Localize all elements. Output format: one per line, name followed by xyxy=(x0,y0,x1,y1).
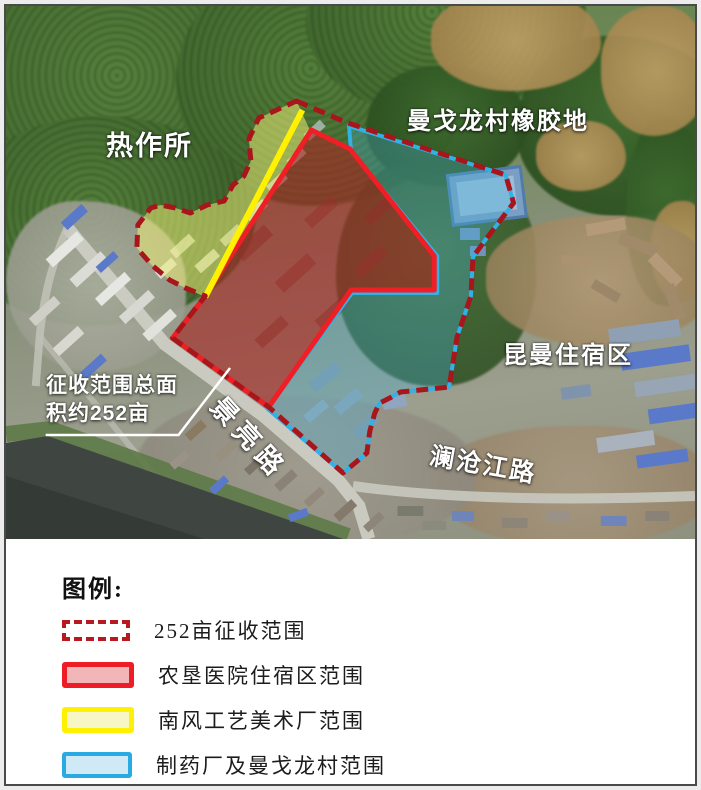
legend-title: 图例: xyxy=(62,569,695,604)
area-label-kunman: 昆曼住宿区 xyxy=(503,343,633,369)
callout-line2: 积约252亩 xyxy=(46,400,178,428)
legend-row-pharma-village: 制药厂及曼戈龙村范围 xyxy=(62,751,695,779)
callout-line1: 征收范围总面 xyxy=(46,372,178,400)
yellow-zone-swatch xyxy=(62,707,134,733)
dashed-boundary-swatch xyxy=(62,620,130,641)
legend-label: 农垦医院住宿区范围 xyxy=(158,660,365,690)
legend-row-acquisition: 252亩征收范围 xyxy=(62,616,695,644)
legend-row-craft-factory: 南风工艺美术厂范围 xyxy=(62,706,695,734)
zones-overlay xyxy=(6,6,695,539)
legend-label: 南风工艺美术厂范围 xyxy=(158,705,365,735)
blue-zone-swatch xyxy=(62,752,132,778)
legend-row-hospital: 农垦医院住宿区范围 xyxy=(62,661,695,689)
area-label-mangelong: 曼戈龙村橡胶地 xyxy=(407,109,589,135)
page-frame: 热作所 曼戈龙村橡胶地 昆曼住宿区 景亮路 澜沧江路 征收范围总面 积约252亩… xyxy=(4,4,697,786)
legend-panel: 图例: 252亩征收范围 农垦医院住宿区范围 南风工艺美术厂范围 制药厂及曼戈龙… xyxy=(6,539,695,784)
area-callout: 征收范围总面 积约252亩 xyxy=(46,372,178,429)
area-label-rezuosuo: 热作所 xyxy=(106,132,193,162)
red-zone-swatch xyxy=(62,662,134,688)
legend-label: 制药厂及曼戈龙村范围 xyxy=(156,750,386,780)
map-canvas: 热作所 曼戈龙村橡胶地 昆曼住宿区 景亮路 澜沧江路 征收范围总面 积约252亩 xyxy=(6,6,695,539)
legend-label: 252亩征收范围 xyxy=(154,615,307,645)
